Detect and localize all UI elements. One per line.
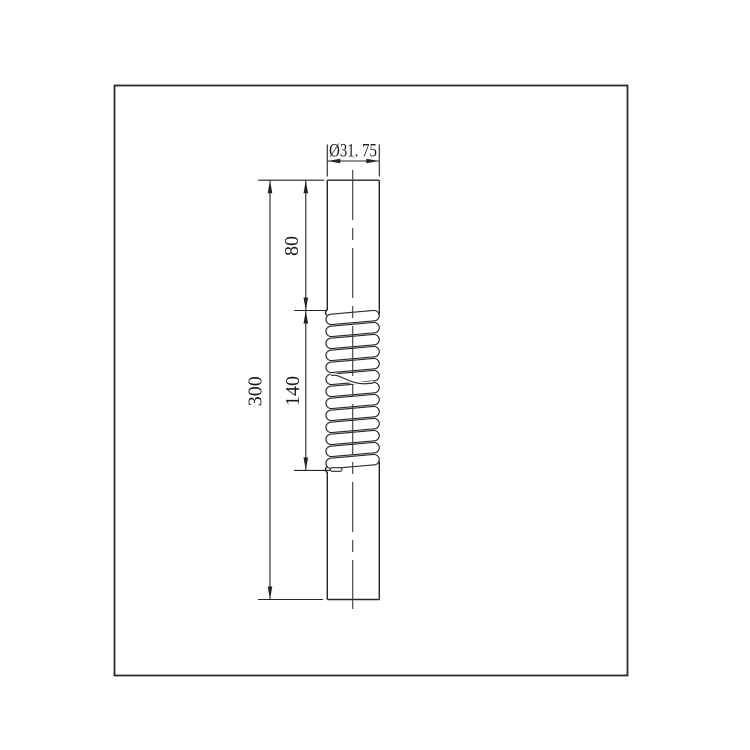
svg-text:140: 140 <box>282 376 304 406</box>
svg-text:300: 300 <box>244 376 266 406</box>
svg-text:Ø31. 75: Ø31. 75 <box>329 140 377 161</box>
svg-text:80: 80 <box>281 236 303 256</box>
